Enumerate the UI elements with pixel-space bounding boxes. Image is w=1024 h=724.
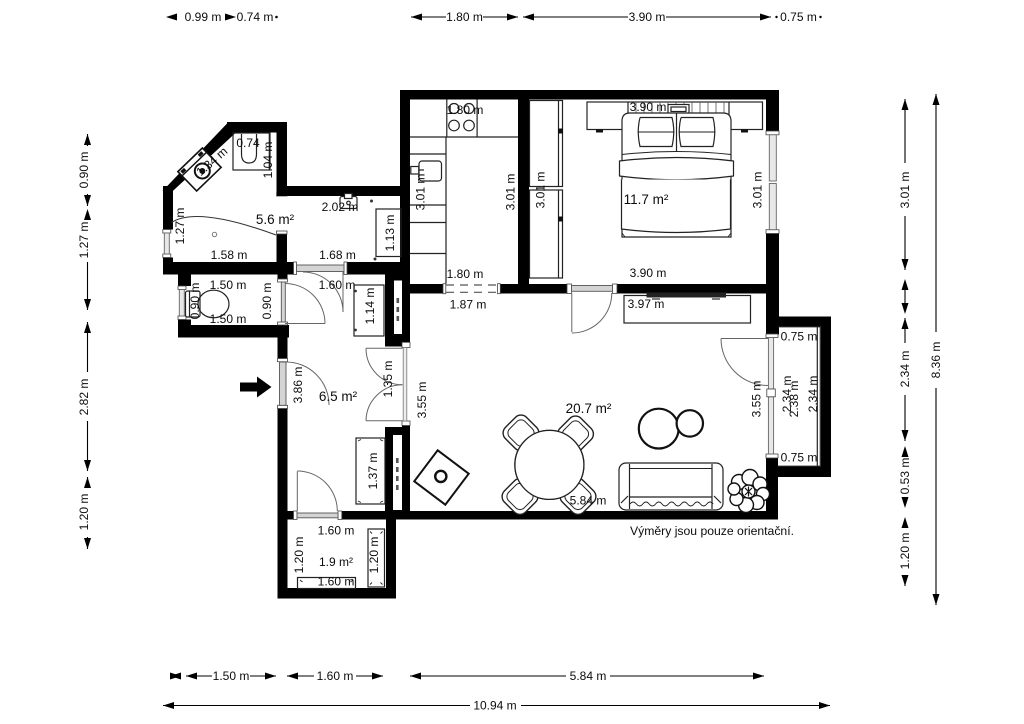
svg-text:0.75 m: 0.75 m [781,330,818,344]
svg-text:Výměry jsou pouze orientační.: Výměry jsou pouze orientační. [630,524,794,538]
svg-text:1.50 m: 1.50 m [210,278,247,292]
svg-text:1.13 m: 1.13 m [383,215,397,252]
svg-text:1.58 m: 1.58 m [211,248,248,262]
svg-text:1.80 m: 1.80 m [447,103,484,117]
svg-text:1.35 m: 1.35 m [381,361,395,398]
svg-text:0.74: 0.74 [236,136,260,150]
svg-text:2.02 m: 2.02 m [322,200,359,214]
svg-text:1.60 m: 1.60 m [317,669,354,683]
svg-text:1.27 m: 1.27 m [173,208,187,245]
svg-text:5.84 m: 5.84 m [570,494,607,508]
svg-text:1.68 m: 1.68 m [319,248,356,262]
svg-text:0.90 m: 0.90 m [77,152,91,189]
svg-text:1.04 m: 1.04 m [261,142,275,179]
svg-text:3.55 m: 3.55 m [750,381,764,418]
svg-text:1.60 m: 1.60 m [318,575,355,589]
svg-text:1.80 m: 1.80 m [446,10,483,24]
svg-text:1.60 m: 1.60 m [319,278,356,292]
svg-text:1.87 m: 1.87 m [450,298,487,312]
svg-text:1.37 m: 1.37 m [366,453,380,490]
svg-text:1.20 m: 1.20 m [898,533,912,570]
svg-text:1.50 m: 1.50 m [213,669,250,683]
svg-text:10.94 m: 10.94 m [473,699,516,713]
svg-text:3.55 m: 3.55 m [415,382,429,419]
svg-text:0.90 m: 0.90 m [260,283,274,320]
svg-text:3.01 m: 3.01 m [898,172,912,209]
svg-text:0.74 m: 0.74 m [237,10,274,24]
svg-text:6.5 m²: 6.5 m² [319,389,358,404]
svg-text:0.75 m: 0.75 m [781,451,818,465]
svg-text:0.99 m: 0.99 m [185,10,222,24]
svg-text:5.6 m²: 5.6 m² [256,212,295,227]
svg-text:3.01 m: 3.01 m [534,172,548,209]
svg-text:1.20 m: 1.20 m [367,537,381,574]
svg-text:3.86 m: 3.86 m [291,367,305,404]
svg-text:2.34 m: 2.34 m [898,351,912,388]
svg-text:3.01 m: 3.01 m [751,172,765,209]
svg-text:1.50 m: 1.50 m [210,312,247,326]
svg-text:1.20 m: 1.20 m [77,494,91,531]
svg-text:1.14 m: 1.14 m [363,288,377,325]
svg-text:1.80 m: 1.80 m [447,267,484,281]
svg-text:8.36 m: 8.36 m [929,342,943,379]
svg-text:20.7 m²: 20.7 m² [566,401,612,416]
svg-text:0.53 m: 0.53 m [898,458,912,495]
svg-text:3.97 m: 3.97 m [628,297,665,311]
svg-text:0.75 m: 0.75 m [780,10,817,24]
svg-text:3.90 m: 3.90 m [630,100,667,114]
svg-text:3.90 m: 3.90 m [630,266,667,280]
svg-text:2.34 m: 2.34 m [806,376,820,413]
svg-text:3.90 m: 3.90 m [629,10,666,24]
svg-text:11.7 m²: 11.7 m² [624,192,669,207]
svg-text:3.01 m: 3.01 m [414,174,428,211]
svg-text:1.20 m: 1.20 m [292,537,306,574]
svg-text:2.82 m: 2.82 m [77,379,91,416]
svg-text:3.01 m: 3.01 m [504,174,518,211]
svg-text:5.84 m: 5.84 m [570,669,607,683]
svg-text:1.27 m: 1.27 m [77,222,91,259]
svg-text:2.34 m: 2.34 m [780,376,794,413]
svg-text:1.60 m: 1.60 m [318,524,355,538]
svg-text:0.90 m: 0.90 m [188,283,202,320]
svg-text:1.9 m²: 1.9 m² [319,555,353,569]
